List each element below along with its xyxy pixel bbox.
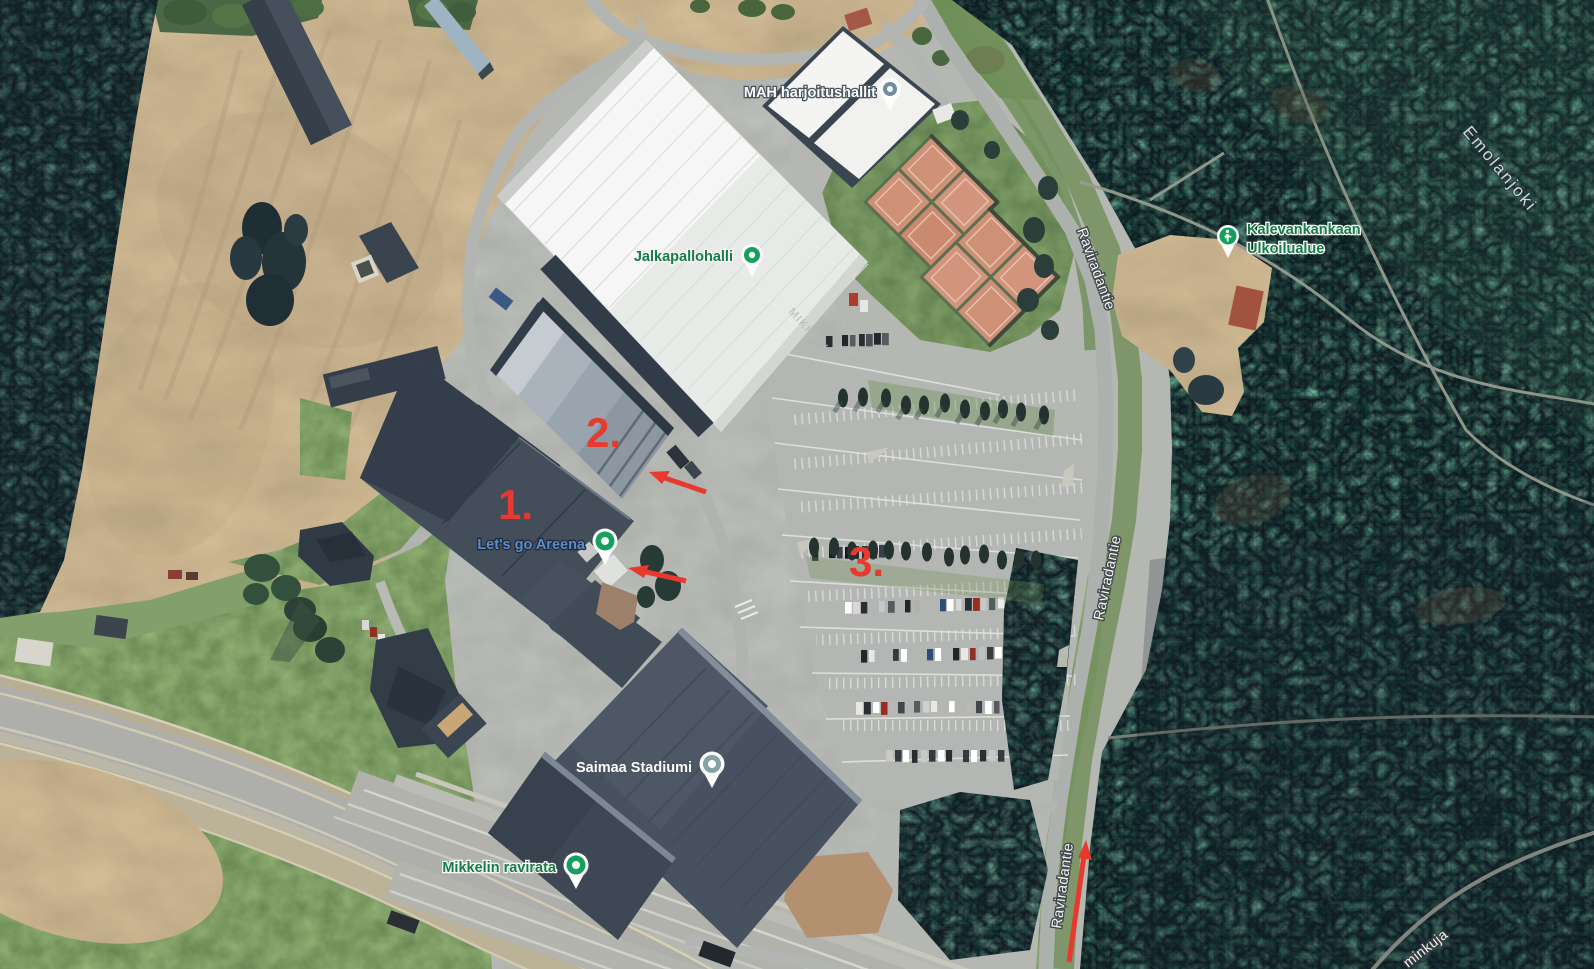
svg-text:Kalevankankaan: Kalevankankaan <box>1247 222 1361 238</box>
svg-text:2.: 2. <box>586 409 621 456</box>
svg-text:MAH harjoitushallit: MAH harjoitushallit <box>744 85 876 101</box>
svg-text:Saimaa Stadiumi: Saimaa Stadiumi <box>576 760 692 776</box>
svg-text:Let's go Areena: Let's go Areena <box>477 537 586 553</box>
svg-text:1.: 1. <box>498 481 533 528</box>
svg-text:Ulkoilualue: Ulkoilualue <box>1247 241 1324 257</box>
svg-text:Jalkapallohalli: Jalkapallohalli <box>634 249 733 265</box>
svg-text:3.: 3. <box>849 538 884 585</box>
svg-text:Mikkelin ravirata: Mikkelin ravirata <box>442 860 557 876</box>
